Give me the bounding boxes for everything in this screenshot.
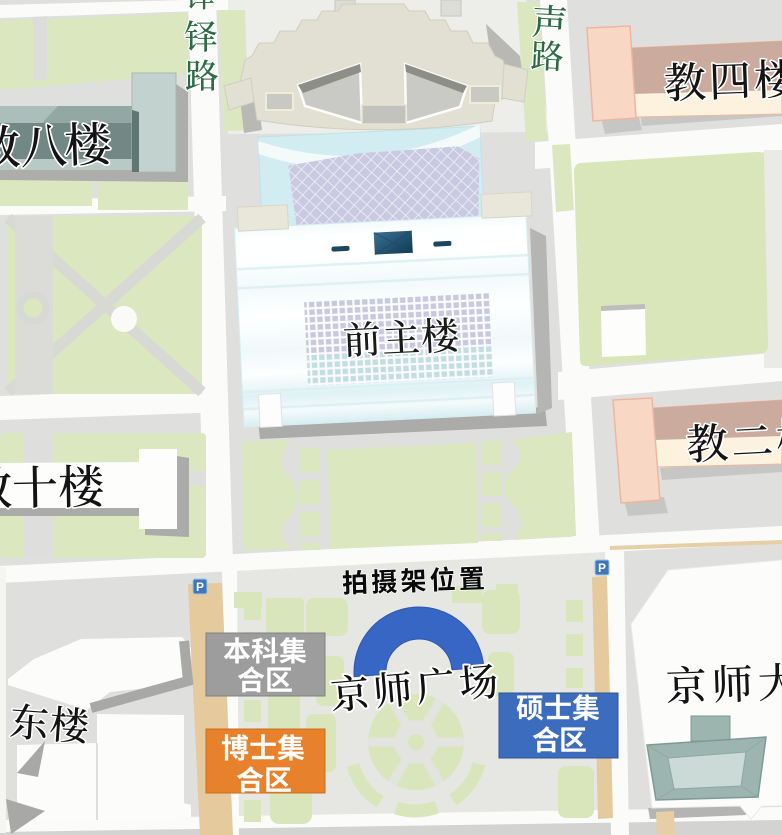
svg-text:P: P: [196, 580, 204, 594]
svg-text:P: P: [598, 561, 606, 575]
